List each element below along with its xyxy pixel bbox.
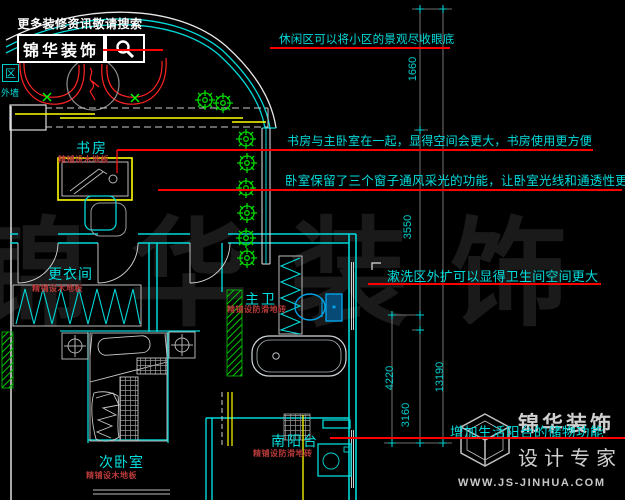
- dimension-13190: 13190: [434, 355, 446, 399]
- leisure-area-decor: [20, 58, 166, 110]
- room-finish-master-bath: 精铺设防滑地砖: [227, 304, 287, 315]
- downlight-icon: [62, 333, 88, 359]
- dimension-3550: 3550: [402, 205, 414, 249]
- annotation-underline: [368, 283, 601, 285]
- plants: [195, 90, 257, 268]
- bathtub: [252, 336, 346, 376]
- exterior-wall-label: 外墙: [1, 86, 19, 99]
- footer-watermark-website: WWW.JS-JINHUA.COM: [458, 477, 622, 489]
- logo-tagline: 更多装修资讯敬请搜索: [14, 15, 146, 32]
- logo-brand-text: 锦华装饰: [23, 37, 99, 61]
- room-label-dressing: 更衣间: [48, 264, 93, 284]
- dimension-3160: 3160: [400, 393, 412, 437]
- room-finish-second-bedroom: 精铺设木地板: [86, 470, 137, 481]
- room-finish-dressing: 精铺设木地板: [32, 283, 83, 294]
- annotation-underline: [117, 149, 593, 151]
- study-chair: [85, 196, 126, 236]
- annotation-leisure-view: 休闲区可以将小区的景观尽收眼底: [279, 31, 455, 47]
- room-finish-south-balcony: 精铺设防滑地砖: [253, 448, 313, 459]
- annotation-underline: [330, 437, 625, 439]
- room-finish-study: 精铺设木地板: [58, 154, 109, 165]
- floorplan-canvas: 锦华装饰: [0, 0, 625, 500]
- footer-watermark-slogan: 设计专家: [518, 442, 622, 471]
- logo-red-line: [103, 49, 163, 51]
- logo-brand-box: 锦华装饰: [17, 34, 105, 63]
- room-label-second-bedroom: 次卧室: [99, 452, 144, 472]
- annotation-underline: [158, 189, 622, 191]
- dimension-1660: 1660: [407, 47, 419, 91]
- bed: [90, 333, 167, 441]
- annotation-underline: [270, 47, 450, 49]
- annotation-corner-mark: [372, 263, 381, 270]
- annotation-study-bedroom: 书房与主卧室在一起，显得空间会更大，书房使用更方便: [287, 132, 592, 149]
- window-sill-bottom: [93, 490, 170, 494]
- dimension-4220: 4220: [384, 356, 396, 400]
- downlight-icon: [169, 332, 195, 358]
- annotation-bedroom-windows: 卧室保留了三个窗子通风采光的功能，让卧室光线和通透性更好: [285, 170, 625, 189]
- area-label: 区: [2, 64, 19, 82]
